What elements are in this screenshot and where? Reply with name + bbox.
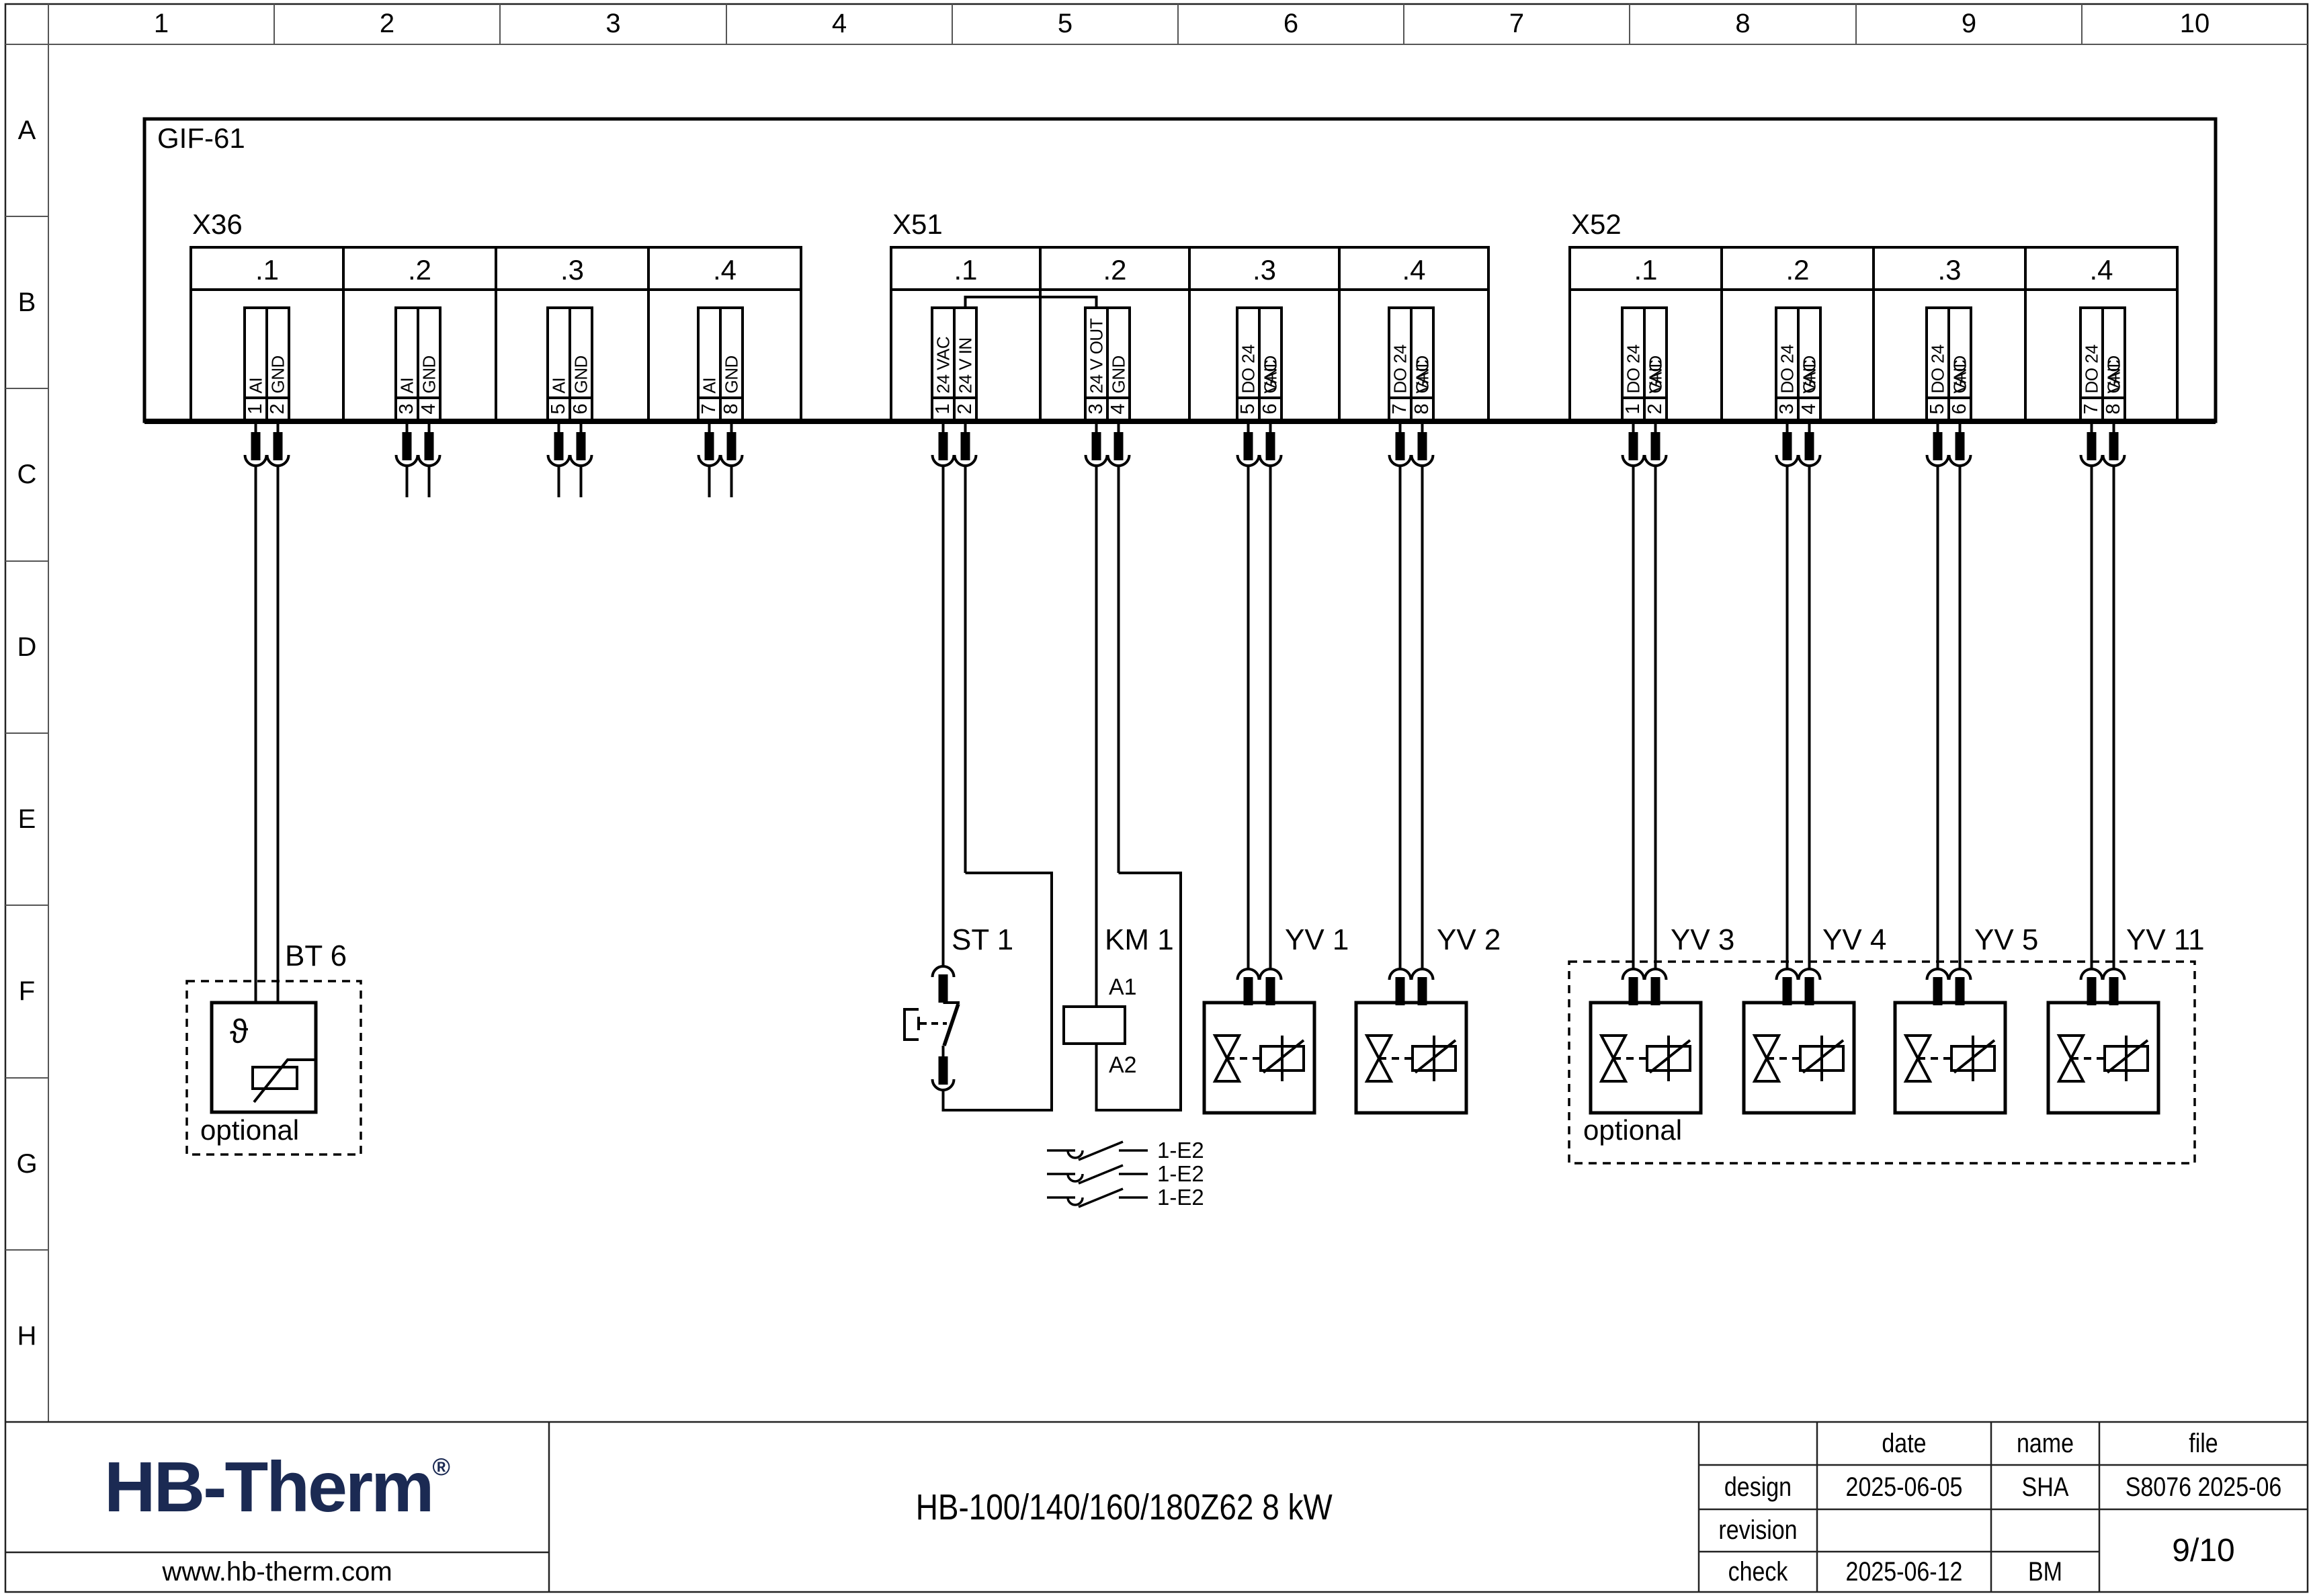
km1-a1-label: A1 bbox=[1109, 974, 1137, 1001]
pin-number: 1 bbox=[932, 398, 954, 420]
schematic-drawing bbox=[0, 0, 2313, 1596]
contact-ref-2: 1-E2 bbox=[1157, 1162, 1204, 1186]
plug-connector-icon bbox=[2081, 969, 2103, 1005]
yv4-label: YV 4 bbox=[1822, 923, 1886, 957]
x51-section-3: .3 bbox=[1189, 251, 1339, 289]
terminal-label: DO 24 VAC bbox=[1389, 310, 1411, 397]
yv11-label: YV 11 bbox=[2126, 923, 2205, 957]
terminal-label: 24 V OUT bbox=[1085, 310, 1107, 397]
grid-row-e: E bbox=[5, 733, 48, 905]
grid-col-4: 4 bbox=[726, 5, 952, 42]
pin-number: 8 bbox=[2103, 398, 2125, 420]
solenoid-valve-icon bbox=[1591, 1003, 1701, 1113]
pin-number: 4 bbox=[1798, 398, 1820, 420]
plug-connector-icon bbox=[2081, 421, 2103, 466]
bt6-optional-note: optional bbox=[200, 1114, 299, 1146]
terminal-label: GND bbox=[1644, 310, 1667, 397]
terminal-label: GND bbox=[1107, 310, 1130, 397]
contactor-coil-icon bbox=[1064, 1007, 1125, 1044]
grid-col-2: 2 bbox=[274, 5, 500, 42]
pin-number: 7 bbox=[698, 398, 720, 420]
plug-connector-icon bbox=[1799, 969, 1820, 1005]
company-logo: HB-Therm® bbox=[5, 1422, 549, 1552]
grid-col-9: 9 bbox=[1856, 5, 2082, 42]
plug-connector-icon bbox=[2103, 969, 2125, 1005]
terminal-label: GND bbox=[418, 310, 440, 397]
check-date: 2025-06-12 bbox=[1830, 1552, 1978, 1592]
terminal-label: DO 24 VAC bbox=[1237, 310, 1259, 397]
reference-grid-lines bbox=[5, 4, 2308, 1422]
pin-number: 2 bbox=[1644, 398, 1667, 420]
terminal-label: DO 24 VAC bbox=[2080, 310, 2103, 397]
drawing-title: HB-100/140/160/180Z62 8 kW bbox=[549, 1422, 1699, 1592]
grid-col-8: 8 bbox=[1630, 5, 1856, 42]
plug-connector-icon bbox=[1260, 969, 1281, 1005]
yv2-label: YV 2 bbox=[1437, 923, 1501, 957]
plug-connector-icon bbox=[1927, 421, 1949, 466]
x51-section-4: .4 bbox=[1339, 251, 1488, 289]
grid-row-b: B bbox=[5, 216, 48, 388]
edge-connectors bbox=[245, 421, 2125, 466]
plug-connector-icon bbox=[396, 421, 418, 466]
x36-section-1: .1 bbox=[191, 251, 343, 289]
plug-connector-icon bbox=[1108, 421, 1130, 466]
thermistor-icon bbox=[253, 1060, 314, 1102]
plug-connector-icon bbox=[1777, 969, 1798, 1005]
km1-aux-contacts bbox=[1047, 1142, 1148, 1207]
pin-number: 3 bbox=[396, 398, 418, 420]
grid-row-g: G bbox=[5, 1078, 48, 1250]
grid-row-f: F bbox=[5, 905, 48, 1078]
plug-connector-icon bbox=[1238, 969, 1259, 1005]
block-label-x51: X51 bbox=[892, 208, 943, 241]
revision-name bbox=[1999, 1509, 2091, 1552]
plug-connector-icon bbox=[245, 421, 267, 466]
pin-number: 1 bbox=[245, 398, 267, 420]
terminal-label: DO 24 VAC bbox=[1927, 310, 1949, 397]
plug-connector-icon bbox=[1645, 421, 1667, 466]
plug-connector-icon bbox=[548, 421, 570, 466]
x36-section-3: .3 bbox=[496, 251, 648, 289]
pin-number: 8 bbox=[720, 398, 743, 420]
block-label-x36: X36 bbox=[192, 208, 243, 241]
bt6-label: BT 6 bbox=[285, 939, 347, 973]
terminal-label: GND bbox=[2103, 310, 2125, 397]
plug-connector-icon bbox=[1412, 969, 1433, 1005]
no-contact-icon bbox=[1047, 1189, 1148, 1207]
grid-row-h: H bbox=[5, 1250, 48, 1422]
yv1-label: YV 1 bbox=[1285, 923, 1349, 957]
thermal-actuator-icon bbox=[905, 1009, 947, 1040]
plug-connector-icon bbox=[955, 421, 976, 466]
terminal-label: AI bbox=[698, 310, 720, 397]
plug-connector-icon bbox=[1390, 969, 1411, 1005]
pin-number: 7 bbox=[2080, 398, 2103, 420]
contact-ref-1: 1-E2 bbox=[1157, 1138, 1204, 1163]
grid-col-10: 10 bbox=[2082, 5, 2308, 42]
table-header-name: name bbox=[1999, 1422, 2091, 1465]
plug-connector-icon bbox=[571, 421, 592, 466]
st1-label: ST 1 bbox=[952, 923, 1013, 957]
registered-mark: ® bbox=[432, 1453, 450, 1481]
km1-label: KM 1 bbox=[1105, 923, 1174, 957]
pin-number: 7 bbox=[1389, 398, 1411, 420]
company-website: www.hb-therm.com bbox=[5, 1552, 549, 1592]
plug-connector-icon bbox=[2103, 421, 2125, 466]
x52-section-1: .1 bbox=[1570, 251, 1722, 289]
theta-symbol: ϑ bbox=[230, 1012, 248, 1051]
yv5-label: YV 5 bbox=[1974, 923, 2038, 957]
plug-connector-icon bbox=[1086, 421, 1107, 466]
plug-connector-icon bbox=[1390, 421, 1411, 466]
plug-connector-icon bbox=[1260, 421, 1281, 466]
contact-ref-3: 1-E2 bbox=[1157, 1185, 1204, 1210]
x51-internal-bridge bbox=[966, 297, 1097, 308]
km1-a2-label: A2 bbox=[1109, 1052, 1137, 1079]
terminal-label: GND bbox=[1259, 310, 1281, 397]
terminal-label: AI bbox=[396, 310, 418, 397]
drawing-title-text: HB-100/140/160/180Z62 8 kW bbox=[915, 1486, 1332, 1528]
pin-number: 1 bbox=[1622, 398, 1644, 420]
plug-connector-icon bbox=[933, 966, 954, 1003]
grid-col-5: 5 bbox=[952, 5, 1178, 42]
terminal-pairs bbox=[245, 308, 2125, 420]
plug-connector-icon bbox=[1623, 969, 1644, 1005]
pin-number: 4 bbox=[1107, 398, 1130, 420]
plug-connector-icon bbox=[267, 421, 289, 466]
unconnected-stubs bbox=[407, 466, 732, 497]
device-label: GIF-61 bbox=[157, 122, 245, 155]
terminal-label: GND bbox=[570, 310, 592, 397]
x52-section-4: .4 bbox=[2025, 251, 2177, 289]
plug-connector-icon bbox=[1777, 421, 1798, 466]
terminal-label: AI bbox=[245, 310, 267, 397]
plug-connector-icon bbox=[1949, 421, 1971, 466]
plug-connector-icon bbox=[1238, 421, 1259, 466]
yv1-valve bbox=[1204, 466, 1314, 1113]
bt6-sensor bbox=[187, 466, 361, 1154]
plug-connector-icon bbox=[933, 1046, 954, 1090]
terminal-label: 24 VAC bbox=[932, 310, 954, 397]
check-name: BM bbox=[1999, 1552, 2091, 1592]
table-row-revision-label: revision bbox=[1708, 1509, 1808, 1552]
grid-row-c: C bbox=[5, 388, 48, 561]
design-file: S8076 2025-06 bbox=[2115, 1465, 2292, 1509]
x52-section-2: .2 bbox=[1722, 251, 1874, 289]
plug-connector-icon bbox=[1645, 969, 1667, 1005]
solenoid-valve-icon bbox=[2048, 1003, 2158, 1113]
grid-col-7: 7 bbox=[1404, 5, 1630, 42]
x52-section-3: .3 bbox=[1874, 251, 2025, 289]
yv3-label: YV 3 bbox=[1671, 923, 1734, 957]
plug-connector-icon bbox=[1623, 421, 1644, 466]
pin-number: 8 bbox=[1411, 398, 1433, 420]
solenoid-valve-icon bbox=[1204, 1003, 1314, 1113]
design-name: SHA bbox=[1999, 1465, 2091, 1509]
optional-valves-group bbox=[1569, 466, 2195, 1163]
pin-number: 3 bbox=[1776, 398, 1798, 420]
x51-section-2: .2 bbox=[1040, 251, 1189, 289]
x36-section-4: .4 bbox=[648, 251, 801, 289]
terminal-label: GND bbox=[1798, 310, 1820, 397]
pin-number: 2 bbox=[267, 398, 289, 420]
block-label-x52: X52 bbox=[1571, 208, 1622, 241]
yv2-valve bbox=[1356, 466, 1466, 1113]
page-border bbox=[5, 4, 2308, 1592]
plug-connector-icon bbox=[721, 421, 743, 466]
terminal-label: AI bbox=[548, 310, 570, 397]
table-row-design-label: design bbox=[1708, 1465, 1808, 1509]
no-contact-icon bbox=[1047, 1142, 1148, 1160]
plug-connector-icon bbox=[699, 421, 720, 466]
terminal-label: GND bbox=[267, 310, 289, 397]
pin-number: 5 bbox=[548, 398, 570, 420]
logo-text: HB-Therm bbox=[104, 1447, 432, 1528]
pin-number: 4 bbox=[418, 398, 440, 420]
plug-connector-icon bbox=[1927, 969, 1949, 1005]
grid-col-1: 1 bbox=[48, 5, 274, 42]
table-header-date: date bbox=[1830, 1422, 1978, 1465]
grid-row-a: A bbox=[5, 44, 48, 216]
pin-number: 5 bbox=[1927, 398, 1949, 420]
pin-number: 6 bbox=[1259, 398, 1281, 420]
grid-col-3: 3 bbox=[500, 5, 726, 42]
no-contact-icon bbox=[1047, 1165, 1148, 1183]
plug-connector-icon bbox=[933, 421, 954, 466]
terminal-label: DO 24 VAC bbox=[1622, 310, 1644, 397]
x51-section-1: .1 bbox=[891, 251, 1040, 289]
solenoid-valve-icon bbox=[1744, 1003, 1854, 1113]
schematic-page: 1 2 3 4 5 6 7 8 9 10 A B C D E F G H GIF… bbox=[0, 0, 2313, 1596]
design-date: 2025-06-05 bbox=[1830, 1465, 1978, 1509]
terminal-label: DO 24 VAC bbox=[1776, 310, 1798, 397]
pin-number: 2 bbox=[954, 398, 976, 420]
plug-connector-icon bbox=[419, 421, 440, 466]
solenoid-valve-icon bbox=[1895, 1003, 2005, 1113]
terminal-label: 24 V IN bbox=[954, 310, 976, 397]
grid-row-d: D bbox=[5, 561, 48, 733]
valves-optional-note: optional bbox=[1583, 1114, 1682, 1146]
terminal-label: GND bbox=[1411, 310, 1433, 397]
plug-connector-icon bbox=[1949, 969, 1971, 1005]
revision-date bbox=[1830, 1509, 1978, 1552]
plug-connector-icon bbox=[1412, 421, 1433, 466]
st1-circuit bbox=[905, 466, 1052, 1110]
x36-section-2: .2 bbox=[343, 251, 496, 289]
terminal-label: GND bbox=[1949, 310, 1971, 397]
pin-number: 6 bbox=[1949, 398, 1971, 420]
grid-col-6: 6 bbox=[1178, 5, 1404, 42]
plug-connector-icon bbox=[1799, 421, 1820, 466]
pin-number: 3 bbox=[1085, 398, 1107, 420]
pin-number: 6 bbox=[570, 398, 592, 420]
terminal-label: GND bbox=[720, 310, 743, 397]
pin-number: 5 bbox=[1237, 398, 1259, 420]
solenoid-valve-icon bbox=[1356, 1003, 1466, 1113]
page-number: 9/10 bbox=[2099, 1509, 2308, 1592]
table-row-check-label: check bbox=[1708, 1552, 1808, 1592]
km1-circuit bbox=[1064, 466, 1181, 1110]
table-header-file: file bbox=[2115, 1422, 2292, 1465]
